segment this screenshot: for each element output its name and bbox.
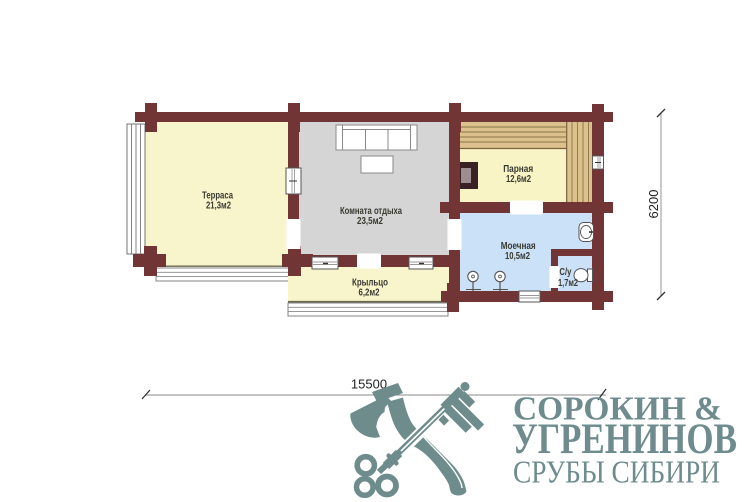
svg-text:СРУБЫ СИБИРИ: СРУБЫ СИБИРИ <box>513 454 720 490</box>
svg-text:6,2м2: 6,2м2 <box>359 287 380 298</box>
svg-text:С/у: С/у <box>559 267 571 278</box>
svg-text:12,6м2: 12,6м2 <box>506 174 531 185</box>
svg-text:10,5м2: 10,5м2 <box>505 251 530 262</box>
svg-text:21,3м2: 21,3м2 <box>206 201 231 212</box>
svg-text:23,5м2: 23,5м2 <box>357 216 383 227</box>
svg-text:6200: 6200 <box>646 190 661 219</box>
svg-text:1,7м2: 1,7м2 <box>558 278 578 289</box>
